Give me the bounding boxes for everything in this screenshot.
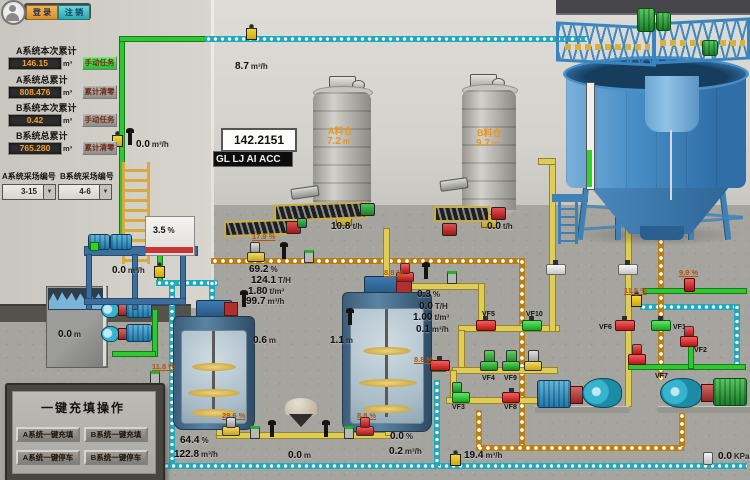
agitator-blade [359,379,417,387]
silo-b-level-unit: m [492,139,499,148]
sensor-cap [280,242,288,247]
valve-label: VF4 [482,375,495,382]
quick-panel-title: 一键充填操作 [12,399,154,416]
a-system-fill-button[interactable]: A系统一键充填 [16,427,80,442]
valve-vf9[interactable] [502,361,520,371]
agitator-blade [363,347,411,355]
readout-unit: % [239,411,246,420]
skid-beam [84,298,186,305]
sensor-cap [240,290,248,295]
total-value: 808.476 [8,86,62,99]
readout-unit: m³/h [201,450,218,459]
readout-unit: m [346,336,353,345]
orange-feed-pipe [476,410,482,447]
water-level-readout: 0.0m [58,330,81,340]
readout-value: 124.1 [251,275,276,286]
valve-vf5[interactable] [476,320,496,331]
flow-sensor-icon [447,271,457,284]
b-system-stop-button[interactable]: B系统一键停车 [84,450,148,465]
cyan-slurry-pipe [640,304,740,310]
logout-button[interactable]: 注 销 [58,5,90,20]
readout-unit: m³/h [152,140,169,149]
valve-actuator-icon [226,417,236,428]
valve-stem [622,316,627,321]
site-b-select[interactable]: 4-6▼ [58,184,112,200]
valve-stem [483,316,488,321]
valve-vf1[interactable] [651,320,671,331]
readout-value: 19.4 [464,450,483,461]
readout-unit: T/H [278,276,291,285]
readout-value: 8.8 [384,268,394,277]
level-sensor-icon [631,295,642,307]
valve-vf8[interactable] [502,392,520,403]
flow-sensor-icon [344,426,354,439]
orange-feed-pipe [476,445,684,451]
readout-unit: t/h [352,222,362,231]
discharge-readout: 122.8m³/h [174,450,218,460]
readout-value: 0.0 [718,451,732,462]
readout-unit: m³/h [251,62,268,71]
sensor-readout: 8.8 % [414,356,433,364]
readout-value: 0.2 [389,446,403,457]
valve-label: VF7 [655,373,668,380]
readout-unit: % [168,362,175,371]
silo-a-level: 7.2m [327,136,350,147]
conveyor-motor [297,218,307,228]
conveyor-rate-readout: 10.8t/h [331,222,362,232]
scada-screen: A料仓 7.2m B料仓 9.7m [0,0,750,480]
flow-sensor-icon [450,454,461,466]
sensor-readout: 8.8 % [384,269,403,277]
silo-b-level: 9.7m [476,138,499,149]
pump-base [658,406,750,413]
yellow-pipe-segment [458,325,560,332]
manual-valve-icon[interactable] [618,264,638,275]
readout-value: 1.00 [413,312,432,323]
filling-pump[interactable] [582,378,622,408]
chevron-down-icon[interactable]: ▼ [43,185,55,199]
density-sensor-icon [424,266,428,279]
readout-unit: m [269,336,276,345]
readout-value: 11.8 [152,362,166,371]
pump-motor [713,378,747,406]
drive-motor[interactable] [656,12,671,31]
silo-b-level-value: 9.7 [476,138,490,149]
readout-value: 0.0 [419,301,433,312]
readout-unit: m³/h [405,447,422,456]
readout-value: 0.0 [136,139,150,150]
site-a-label: A系统采场编号 [2,171,56,182]
pressure-readout: 0.0KPa [718,452,749,462]
discharge-readout: 0.2m³/h [389,447,422,457]
site-a-select[interactable]: 3-15▼ [2,184,56,200]
inline-valve-icon [270,424,274,437]
avatar-head [9,5,16,12]
valve-stem [658,316,663,321]
orange-feed-pipe [679,412,685,447]
readout-value: 99.7 [246,296,265,307]
site-b-value: 4-6 [79,187,91,196]
total-label: A系统本次累计 [16,44,77,57]
thickener-feedwell [645,76,699,132]
agent-tank-readout: 3.5% [153,226,175,235]
pump-motor [126,324,152,342]
readout-unit: % [433,290,440,299]
sensor-readout: 9.9 % [679,269,698,277]
antenna-icon [453,450,458,455]
flow-sensor-icon [304,250,314,263]
density-sensor-icon [282,246,286,259]
readout-unit: m³/h [432,325,449,334]
sensor-cap [126,128,134,133]
valve-label: VF8 [504,404,517,411]
agitator-blade [192,363,236,371]
silo-a-level-value: 7.2 [327,136,341,147]
readout-unit: % [397,268,404,277]
cyan-slurry-pipe [434,380,440,466]
skid-pump[interactable] [110,234,132,250]
readout-unit: % [427,355,434,364]
slurry-readout: 0.1m³/h [416,325,449,335]
readout-value: 11.5 [624,286,638,295]
valve-stem [625,260,630,265]
readout-unit: T/H [435,302,448,311]
valve-label: VF2 [694,347,707,354]
level-transmitter-icon [348,312,352,325]
valve-vf3[interactable] [452,392,470,403]
readout-unit: % [269,232,276,241]
yellow-pipe-segment [549,162,556,332]
thickener-platform [552,194,588,202]
slurry-readout: 0.3% [417,290,440,300]
tank-level-readout: 0.6m [253,336,276,346]
status-marquee: GL LJ AI ACC [213,151,293,167]
agitator-blade [188,389,240,397]
readout-unit: % [168,226,175,235]
total-value: 146.15 [8,57,62,70]
inline-valve-icon [324,424,328,437]
readout-unit: m [74,330,81,339]
readout-value: 0.0 [390,431,404,442]
readout-unit: % [640,286,647,295]
valve-vf7[interactable] [628,354,646,365]
readout-value: 69.2 [249,264,268,275]
tank-level-readout: 1.1m [330,336,353,346]
total-label: A系统总累计 [16,73,68,86]
valve-label: VF3 [452,404,465,411]
sensor-readout: 17.9 % [252,233,275,241]
antenna-icon [115,131,120,136]
thickener-level-fill [587,150,592,187]
flow-readout: 8.7m³/h [235,62,268,72]
green-pipe-segment [119,36,211,42]
reset-total-button[interactable]: 累计清零 [82,85,117,99]
total-unit: m³ [63,59,72,68]
cyan-slurry-pipe [734,304,740,370]
mixing-tank-a-cutaway [181,330,247,424]
valve-vf10[interactable] [522,320,542,331]
readout-value: 17.9 [252,232,267,241]
conveyor-motor [360,203,375,216]
flow-sensor-icon [250,426,260,439]
readout-unit: m³/h [485,451,502,460]
user-avatar-icon[interactable] [1,0,26,25]
reset-total-button[interactable]: 累计清零 [82,141,117,155]
spare-valve[interactable] [524,361,542,371]
truss-conveyor [565,44,650,50]
login-button[interactable]: 登 录 [26,5,58,20]
valve-stem [437,356,442,361]
sensor-cap [346,308,354,313]
conveyor-rate-readout: 0.0t/h [487,222,513,232]
total-label: B系统总累计 [16,129,68,142]
readout-value: 0.6 [253,335,267,346]
readout-unit: KPa [734,452,750,461]
readout-value: 122.8 [174,449,199,460]
mixing-tank-b-cutaway [350,308,424,424]
slurry-readout: 1.00t/m³ [413,313,449,323]
valve-actuator-icon [250,242,260,253]
gauge-sensor-icon [128,132,132,145]
readout-value: 3.5 [153,225,166,235]
site-a-value: 3-15 [21,187,37,196]
readout-unit: t/m³ [269,287,284,296]
total-value: 765.280 [8,142,62,155]
totalizer-display: 142.2151 [221,128,297,152]
run-indicator [90,242,99,251]
valve-vf2[interactable] [680,336,698,347]
manual-task-button[interactable]: 手动任务 [82,56,117,70]
readout-value: 10.8 [331,221,350,232]
flow-sensor-icon [246,28,257,40]
readout-value: 64.4 [180,435,199,446]
antenna-icon [157,262,162,267]
yellow-pipe-segment [538,158,556,165]
readout-value: 0.0 [112,265,126,276]
thickener-ladder [558,202,578,244]
valve-stem [509,388,514,393]
readout-unit: % [692,268,699,277]
agitator-shaft [212,331,215,417]
green-pipe-segment [152,309,158,357]
feeder-valve-icon[interactable] [247,252,265,262]
readout-value: 0.0 [487,221,501,232]
sensor-cap [422,262,430,267]
valve-label: VF6 [599,324,612,331]
discharge-readout: 0.0% [390,432,413,442]
total-unit: m³ [63,144,72,153]
readout-unit: % [270,265,277,274]
readout-unit: m³/h [128,266,145,275]
silo-a-body[interactable] [313,92,371,202]
sensor-cap [268,420,276,425]
silo-b-body[interactable] [462,90,516,210]
thickener-underflow [640,226,684,240]
agent-tank-stripe [145,247,193,253]
green-pipe-segment [643,288,747,294]
thickener-shaft [670,130,672,200]
valve-actuator-icon [360,417,370,428]
density-sensor-icon [684,278,695,292]
readout-value: 1.1 [330,335,344,346]
total-value: 0.42 [8,114,62,127]
mixer-a-coupling [224,302,238,316]
discharge-readout: 64.4% [180,436,209,446]
hopper-funnel [289,414,313,427]
sensor-readout: 11.5 % [624,287,647,295]
tailings-pump[interactable] [660,378,702,408]
flow-sensor-icon [154,266,165,278]
flow-readout: 0.0m³/h [136,140,169,150]
sensor-cap [322,420,330,425]
readout-value: 0.3 [417,289,431,300]
readout-unit: % [370,411,377,420]
green-pipe-segment [112,351,156,357]
slurry-readout: 69.2% [249,265,278,275]
readout-unit: % [406,432,413,441]
drive-motor[interactable] [637,8,655,32]
readout-value: 0.0 [288,450,302,461]
readout-value: 8.7 [235,61,249,72]
readout-unit: t/h [503,222,513,231]
readout-value: 0.1 [416,324,430,335]
total-unit: m³ [63,116,72,125]
readout-value: 0.0 [58,329,72,340]
site-b-label: B系统采场编号 [60,171,114,182]
orange-feed-pipe [519,258,525,450]
cyan-slurry-pipe [205,36,587,42]
valve-label: VF9 [504,375,517,382]
total-label: B系统本次累计 [16,101,77,114]
valve-stem [553,260,558,265]
readout-unit: % [201,436,208,445]
readout-unit: m³/h [267,297,284,306]
yellow-pipe-segment [458,330,465,372]
chevron-down-icon[interactable]: ▼ [99,185,111,199]
water-pump[interactable] [101,326,119,342]
silo-a-level-unit: m [343,137,350,146]
valve-vf4[interactable] [480,361,498,371]
flow-readout: 19.4m³/h [464,451,502,461]
slurry-readout: 99.7m³/h [246,297,284,307]
valve-stem [529,316,534,321]
readout-unit: t/m³ [434,313,449,322]
green-pipe-segment [628,364,746,370]
readout-value: 8.8 [414,355,424,364]
drive-motor[interactable] [702,40,718,56]
manual-valve-icon[interactable] [546,264,566,275]
valve-vf6[interactable] [615,320,635,331]
readout-unit: m [304,451,311,460]
pump-coupling [570,386,583,404]
slurry-readout: 124.1T/H [251,276,291,286]
total-unit: m³ [63,88,72,97]
screw-conveyor[interactable] [434,206,490,222]
a-system-stop-button[interactable]: A系统一键停车 [16,450,80,465]
sensor-readout: 11.8 % [152,363,175,371]
hopper-level-readout: 0.0m [288,451,311,461]
pressure-sensor-icon [703,452,713,465]
conveyor-motor [491,207,506,220]
manual-task-button[interactable]: 手动任务 [82,113,117,127]
pump-motor [537,380,571,408]
flow-readout: 0.0m³/h [112,266,145,276]
avatar-body [6,13,19,21]
orange-feed-pipe [658,238,664,380]
slurry-readout: 0.0T/H [419,302,448,312]
agitator-shaft [385,309,388,417]
antenna-icon [249,24,254,29]
readout-value: 9.9 [679,268,689,277]
b-system-fill-button[interactable]: B系统一键充填 [84,427,148,442]
conveyor-motor [442,223,457,236]
